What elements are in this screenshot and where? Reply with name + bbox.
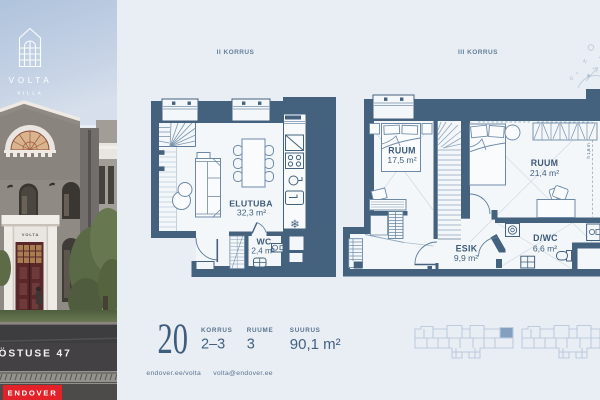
- svg-text:2,4 m²: 2,4 m²: [251, 247, 274, 256]
- svg-text:RUUM: RUUM: [531, 158, 559, 168]
- svg-text:WC: WC: [256, 237, 271, 247]
- svg-text:3: 3: [247, 337, 255, 353]
- svg-text:D/WC: D/WC: [533, 233, 558, 243]
- svg-text:II KORRUS: II KORRUS: [217, 49, 255, 56]
- svg-text:VOLTA: VOLTA: [9, 76, 53, 85]
- svg-text:20: 20: [158, 316, 189, 363]
- svg-text:ESIK: ESIK: [456, 244, 478, 254]
- svg-text:III KORRUS: III KORRUS: [458, 49, 498, 56]
- svg-text:volta@endover.ee: volta@endover.ee: [213, 370, 273, 377]
- svg-text:RUUM: RUUM: [388, 146, 416, 156]
- svg-text:VOLTA: VOLTA: [22, 232, 39, 237]
- svg-text:RUUME: RUUME: [247, 327, 274, 334]
- svg-text:90,1 m²: 90,1 m²: [290, 336, 341, 353]
- svg-text:ÖSTUSE 47: ÖSTUSE 47: [0, 347, 72, 360]
- svg-text:VILLA: VILLA: [17, 91, 43, 96]
- svg-text:h 1,6 m: h 1,6 m: [586, 143, 591, 158]
- svg-text:21,4 m²: 21,4 m²: [530, 168, 559, 178]
- svg-text:2–3: 2–3: [201, 337, 225, 353]
- svg-text:endover.ee/volta: endover.ee/volta: [146, 370, 201, 377]
- svg-text:KORRUS: KORRUS: [201, 327, 233, 334]
- svg-text:o: o: [576, 71, 578, 75]
- svg-text:17,5 m²: 17,5 m²: [387, 155, 416, 165]
- svg-text:6,6 m²: 6,6 m²: [533, 244, 557, 254]
- svg-text:9,9 m²: 9,9 m²: [454, 253, 478, 263]
- svg-text:SUURUS: SUURUS: [290, 327, 321, 334]
- svg-text:❄: ❄: [290, 219, 300, 231]
- svg-text:32,3 m²: 32,3 m²: [237, 208, 266, 218]
- svg-text:✱: ✱: [587, 74, 591, 80]
- svg-text:ENDOVER: ENDOVER: [8, 389, 58, 398]
